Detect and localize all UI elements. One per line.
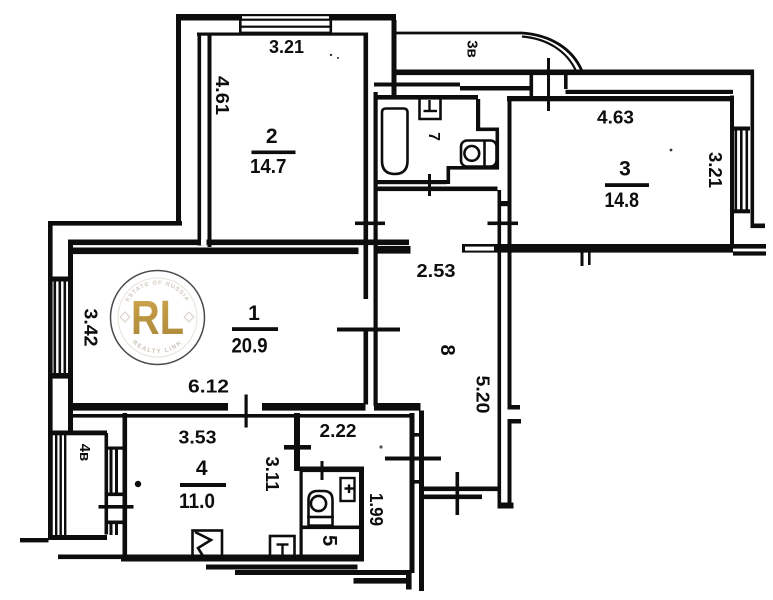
svg-text:3.53: 3.53 (179, 427, 217, 448)
svg-text:7: 7 (425, 132, 442, 141)
svg-text:RL: RL (131, 292, 184, 345)
svg-text:3.42: 3.42 (81, 309, 102, 347)
svg-text:2.53: 2.53 (417, 260, 456, 281)
svg-text:2.22: 2.22 (320, 420, 357, 441)
svg-text:3в: 3в (464, 40, 481, 58)
svg-text:20.9: 20.9 (232, 335, 268, 358)
svg-text:4.63: 4.63 (597, 107, 634, 128)
svg-text:14.8: 14.8 (604, 189, 639, 212)
svg-text:3.11: 3.11 (262, 457, 283, 492)
svg-text:5: 5 (318, 535, 340, 546)
svg-text:14.7: 14.7 (250, 155, 287, 178)
svg-text:4.61: 4.61 (212, 76, 233, 115)
svg-text:1: 1 (248, 302, 260, 325)
svg-text:6.12: 6.12 (188, 376, 229, 397)
svg-text:1.99: 1.99 (366, 493, 387, 526)
svg-text:2: 2 (266, 125, 278, 148)
svg-text:4: 4 (196, 457, 208, 480)
svg-text:8: 8 (436, 344, 458, 355)
svg-text:3: 3 (619, 158, 631, 181)
svg-text:5.20: 5.20 (473, 376, 494, 414)
svg-text:4в: 4в (76, 444, 93, 462)
svg-text:3.21: 3.21 (705, 152, 726, 188)
svg-text:11.0: 11.0 (179, 490, 215, 513)
svg-text:3.21: 3.21 (269, 36, 304, 57)
